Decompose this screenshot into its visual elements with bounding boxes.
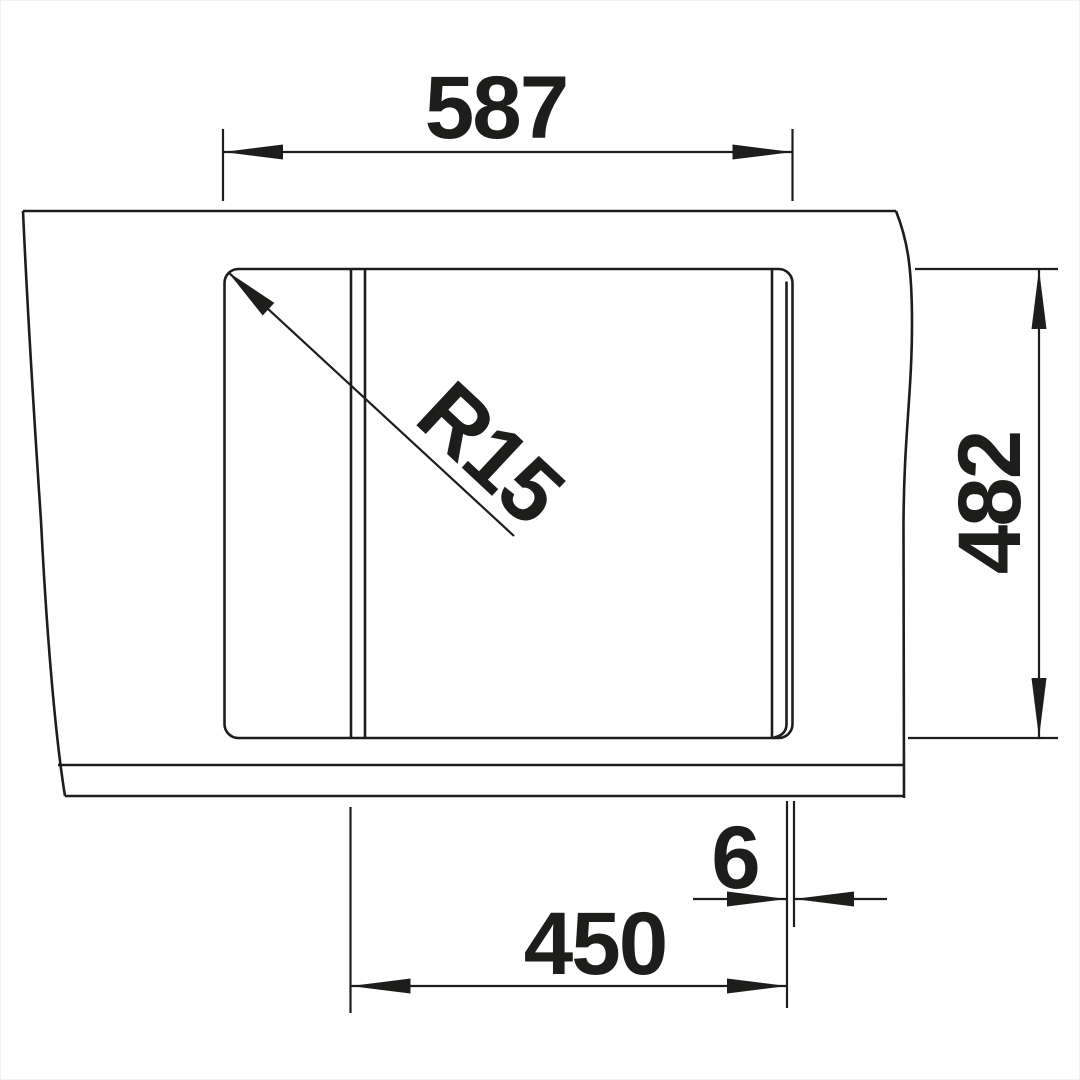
dim-587-arrowhead-right: [733, 145, 793, 160]
dimension-587: 587: [223, 57, 793, 201]
dimension-482: 482: [908, 269, 1058, 738]
radius-r15: R15: [228, 272, 583, 543]
dim-450-label: 450: [524, 893, 667, 993]
r15-arrowhead: [228, 272, 274, 316]
countertop: [23, 211, 912, 798]
dimension-6: 6: [693, 801, 887, 927]
dim-6-label: 6: [711, 807, 759, 907]
dim-482-arrowhead-top: [1032, 269, 1047, 329]
dim-587-arrowhead-left: [223, 145, 283, 160]
countertop-left-break-line: [23, 211, 65, 796]
dim-450-arrowhead-left: [351, 979, 411, 994]
technical-drawing-canvas: 587 482 450 6: [0, 0, 1080, 1080]
r15-label: R15: [399, 362, 583, 543]
dim-450-arrowhead-right: [727, 979, 787, 994]
dim-6-arrowhead-right: [794, 892, 854, 907]
sink-dimension-drawing: 587 482 450 6: [1, 1, 1080, 1080]
countertop-right-break-line: [896, 211, 912, 798]
dim-482-label: 482: [939, 432, 1039, 575]
dim-587-label: 587: [425, 57, 568, 157]
dim-482-arrowhead-bottom: [1032, 678, 1047, 738]
sink-right-offset-line: [774, 282, 787, 738]
